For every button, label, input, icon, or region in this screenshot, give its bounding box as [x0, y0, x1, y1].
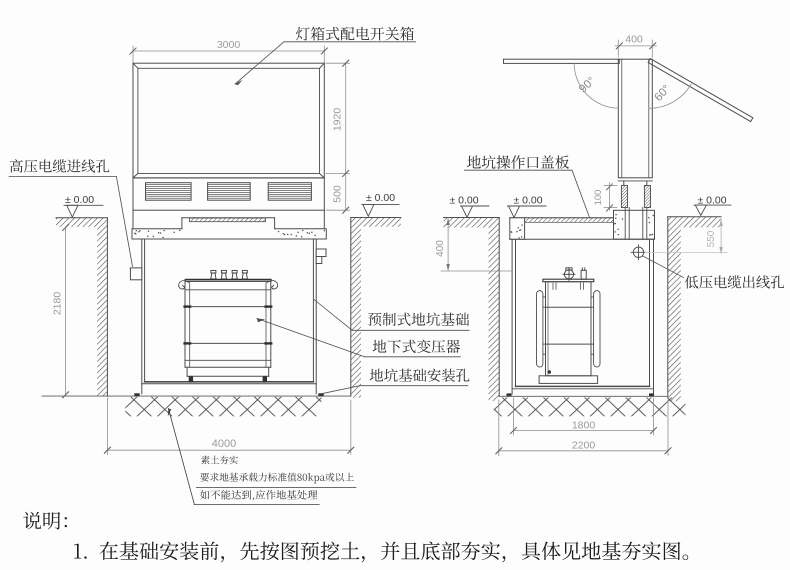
svg-text:500: 500 [332, 185, 344, 203]
svg-text:100: 100 [593, 190, 604, 206]
svg-text:± 0.00: ± 0.00 [366, 192, 395, 204]
svg-text:1920: 1920 [332, 108, 344, 132]
svg-text:2200: 2200 [572, 439, 596, 451]
svg-text:550: 550 [706, 230, 717, 247]
svg-text:± 0.00: ± 0.00 [698, 194, 727, 206]
svg-text:± 0.00: ± 0.00 [65, 194, 94, 206]
svg-text:4000: 4000 [212, 438, 236, 450]
svg-text:400: 400 [435, 240, 446, 257]
svg-text:1800: 1800 [572, 419, 596, 431]
svg-text:± 0.00: ± 0.00 [450, 194, 479, 206]
svg-text:3000: 3000 [217, 39, 241, 51]
svg-text:2180: 2180 [52, 292, 64, 316]
svg-text:± 0.00: ± 0.00 [514, 194, 543, 206]
svg-text:400: 400 [625, 34, 643, 46]
